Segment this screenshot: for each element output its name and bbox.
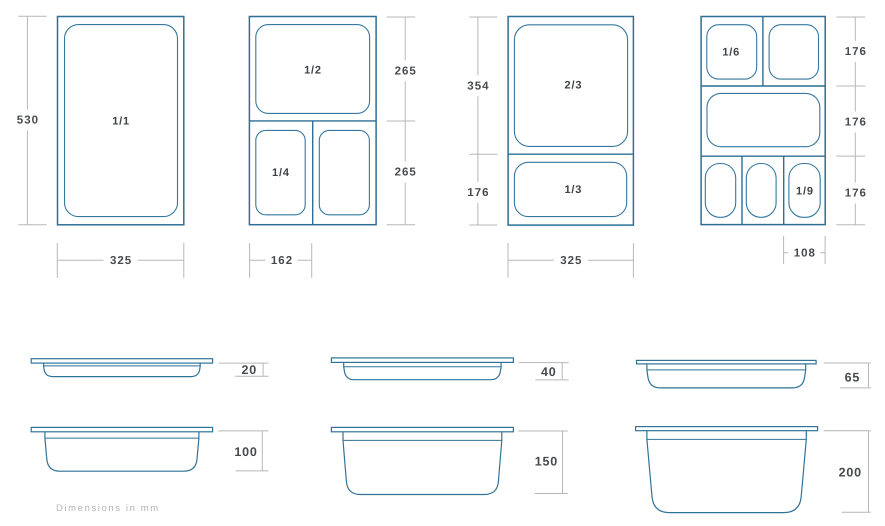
svg-text:2/3: 2/3 [565, 80, 583, 92]
svg-text:530: 530 [17, 115, 39, 127]
svg-text:162: 162 [271, 255, 293, 267]
svg-text:100: 100 [234, 445, 257, 459]
svg-text:1/2: 1/2 [304, 64, 322, 76]
svg-text:20: 20 [241, 363, 257, 377]
svg-text:354: 354 [467, 80, 489, 92]
svg-text:1/3: 1/3 [564, 184, 582, 196]
svg-text:325: 325 [110, 255, 132, 267]
svg-text:1/4: 1/4 [272, 167, 290, 179]
svg-text:265: 265 [395, 65, 417, 77]
svg-text:325: 325 [560, 255, 582, 267]
svg-text:1/6: 1/6 [722, 46, 740, 58]
svg-text:65: 65 [845, 371, 861, 385]
svg-text:1/9: 1/9 [796, 185, 814, 197]
svg-text:150: 150 [535, 454, 558, 468]
svg-text:176: 176 [845, 117, 867, 129]
svg-text:176: 176 [845, 46, 867, 58]
svg-text:176: 176 [845, 188, 867, 200]
svg-text:Dimensions in mm: Dimensions in mm [56, 503, 160, 514]
svg-text:108: 108 [794, 247, 816, 259]
svg-text:265: 265 [395, 167, 417, 179]
svg-text:40: 40 [541, 365, 557, 379]
svg-text:176: 176 [467, 187, 489, 199]
svg-text:1/1: 1/1 [112, 116, 130, 128]
svg-text:200: 200 [839, 466, 862, 480]
